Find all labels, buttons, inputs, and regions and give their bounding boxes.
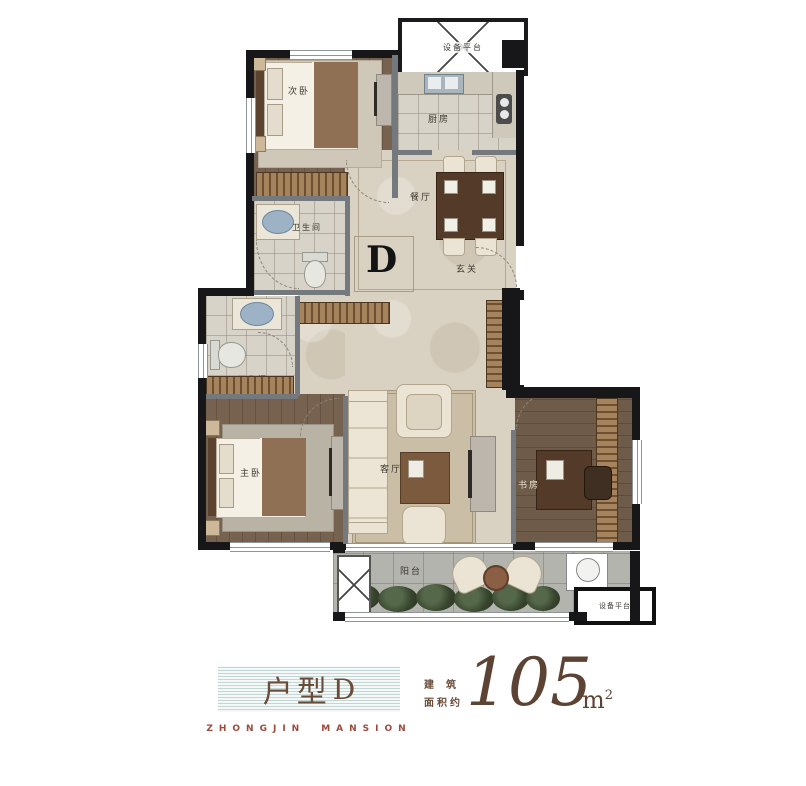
master-label: 主卧 xyxy=(240,466,262,479)
brand-word-right: MANSION xyxy=(321,724,411,734)
wall-segment xyxy=(502,40,526,68)
interior-wall xyxy=(392,55,398,198)
dining-chair xyxy=(443,238,465,256)
balcony-slider-window xyxy=(346,543,514,552)
bedroom2-pillow xyxy=(267,68,283,100)
balcony-label: 阳台 xyxy=(400,564,422,577)
unit-type-prefix: 户型 xyxy=(263,667,331,711)
window xyxy=(632,440,642,504)
area-unit-letter: m xyxy=(582,686,605,714)
kitchen-sink-basin xyxy=(428,77,441,89)
living-pouf xyxy=(402,506,446,546)
master-headboard xyxy=(208,438,216,516)
bedroom2-blanket xyxy=(312,62,358,148)
dining-place-setting xyxy=(482,218,496,232)
window xyxy=(535,542,613,552)
wall-segment xyxy=(516,70,524,246)
area-value: 105 xyxy=(466,650,592,716)
wall-segment xyxy=(516,290,524,300)
equipment-bottom-label: 设备平台 xyxy=(599,601,631,611)
study-label: 书房 xyxy=(518,478,540,491)
brand-row: ZHONGJIN MANSION xyxy=(218,722,400,735)
master-pillow xyxy=(219,444,234,474)
stove-burner xyxy=(500,98,509,107)
master-blanket xyxy=(260,438,306,516)
master-nightstand xyxy=(204,420,220,436)
balcony-plant xyxy=(378,586,418,612)
wall-segment xyxy=(198,296,206,344)
interior-wall xyxy=(252,196,350,201)
area-label: 建筑 面积约 xyxy=(424,676,468,709)
interior-wall xyxy=(206,394,298,399)
area-label-line1: 建筑 xyxy=(424,676,468,691)
wall-segment xyxy=(522,387,640,398)
area-label-line2: 面积约 xyxy=(424,694,468,709)
unit-type-box: 户型 D xyxy=(218,666,400,712)
master-pillow xyxy=(219,478,234,508)
living-tv-cabinet xyxy=(470,436,496,512)
bath-upper-label: 卫生间 xyxy=(292,222,322,233)
wall-segment xyxy=(198,288,254,296)
dining-place-setting xyxy=(444,180,458,194)
kitchen-sink-basin xyxy=(445,77,458,89)
bedroom2-pillow xyxy=(267,104,283,136)
interior-wall xyxy=(472,150,516,155)
window xyxy=(290,50,352,60)
wall-segment xyxy=(333,543,345,553)
wall-segment xyxy=(569,612,587,621)
living-label: 客厅 xyxy=(380,462,402,475)
wall-segment xyxy=(513,542,535,550)
interior-wall xyxy=(295,296,300,396)
unit-letter-mark: D xyxy=(366,242,397,278)
unit-type-letter: D xyxy=(333,673,355,706)
wall-segment xyxy=(632,504,640,550)
dining-place-setting xyxy=(482,180,496,194)
window xyxy=(246,98,256,153)
master-tv xyxy=(329,448,332,496)
floorplan-page: D 设备平台 厨房 餐厅 玄关 卫生间 卫生间 xyxy=(0,0,806,786)
desk-papers xyxy=(546,460,564,480)
wall-segment xyxy=(506,385,524,398)
balcony-table xyxy=(483,565,509,591)
window xyxy=(198,344,208,378)
wall-segment xyxy=(246,153,254,293)
study-chair xyxy=(584,466,612,500)
bedroom2-tv xyxy=(374,82,377,116)
window xyxy=(230,542,330,552)
bedroom2-tv-cabinet xyxy=(376,74,392,126)
dining-label: 餐厅 xyxy=(410,190,432,203)
sofa-armrest xyxy=(348,390,388,402)
master-nightstand xyxy=(204,520,220,536)
bedroom2-wardrobe xyxy=(256,172,348,198)
bath-upper-toilet xyxy=(304,260,326,288)
balcony-hatch-box xyxy=(337,555,371,615)
interior-wall xyxy=(254,290,346,295)
bath-lower-toilet xyxy=(218,342,246,368)
wall-segment xyxy=(206,542,230,550)
kitchen-label: 厨房 xyxy=(428,112,450,125)
balcony-plant xyxy=(416,584,456,611)
balcony-basin-bowl xyxy=(576,558,600,582)
interior-wall xyxy=(398,150,432,155)
coffee-table-tray xyxy=(408,460,424,478)
wall-segment xyxy=(502,288,520,390)
foyer-label: 玄关 xyxy=(456,262,478,275)
wall-segment xyxy=(246,50,290,58)
interior-wall xyxy=(511,430,516,544)
bath-upper-sink xyxy=(262,210,294,234)
dining-place-setting xyxy=(444,218,458,232)
balcony-railing-window xyxy=(345,612,569,622)
area-unit: m2 xyxy=(582,686,613,714)
interior-wall xyxy=(343,396,348,544)
brand-word-left: ZHONGJIN xyxy=(206,724,305,734)
living-tv xyxy=(468,450,472,498)
armchair-cushion xyxy=(406,394,442,430)
stove-burner xyxy=(500,110,509,119)
wall-segment xyxy=(630,551,640,621)
wall-segment xyxy=(198,378,206,550)
equipment-top-label: 设备平台 xyxy=(441,42,485,53)
wall-segment xyxy=(246,58,254,98)
bedroom2-label: 次卧 xyxy=(288,84,310,97)
area-unit-exponent: 2 xyxy=(605,688,613,703)
bath-lower-sink xyxy=(240,302,274,326)
wall-segment xyxy=(333,612,345,621)
sofa-armrest xyxy=(348,522,388,534)
interior-wall xyxy=(345,196,350,296)
hall-wardrobe xyxy=(298,302,390,324)
